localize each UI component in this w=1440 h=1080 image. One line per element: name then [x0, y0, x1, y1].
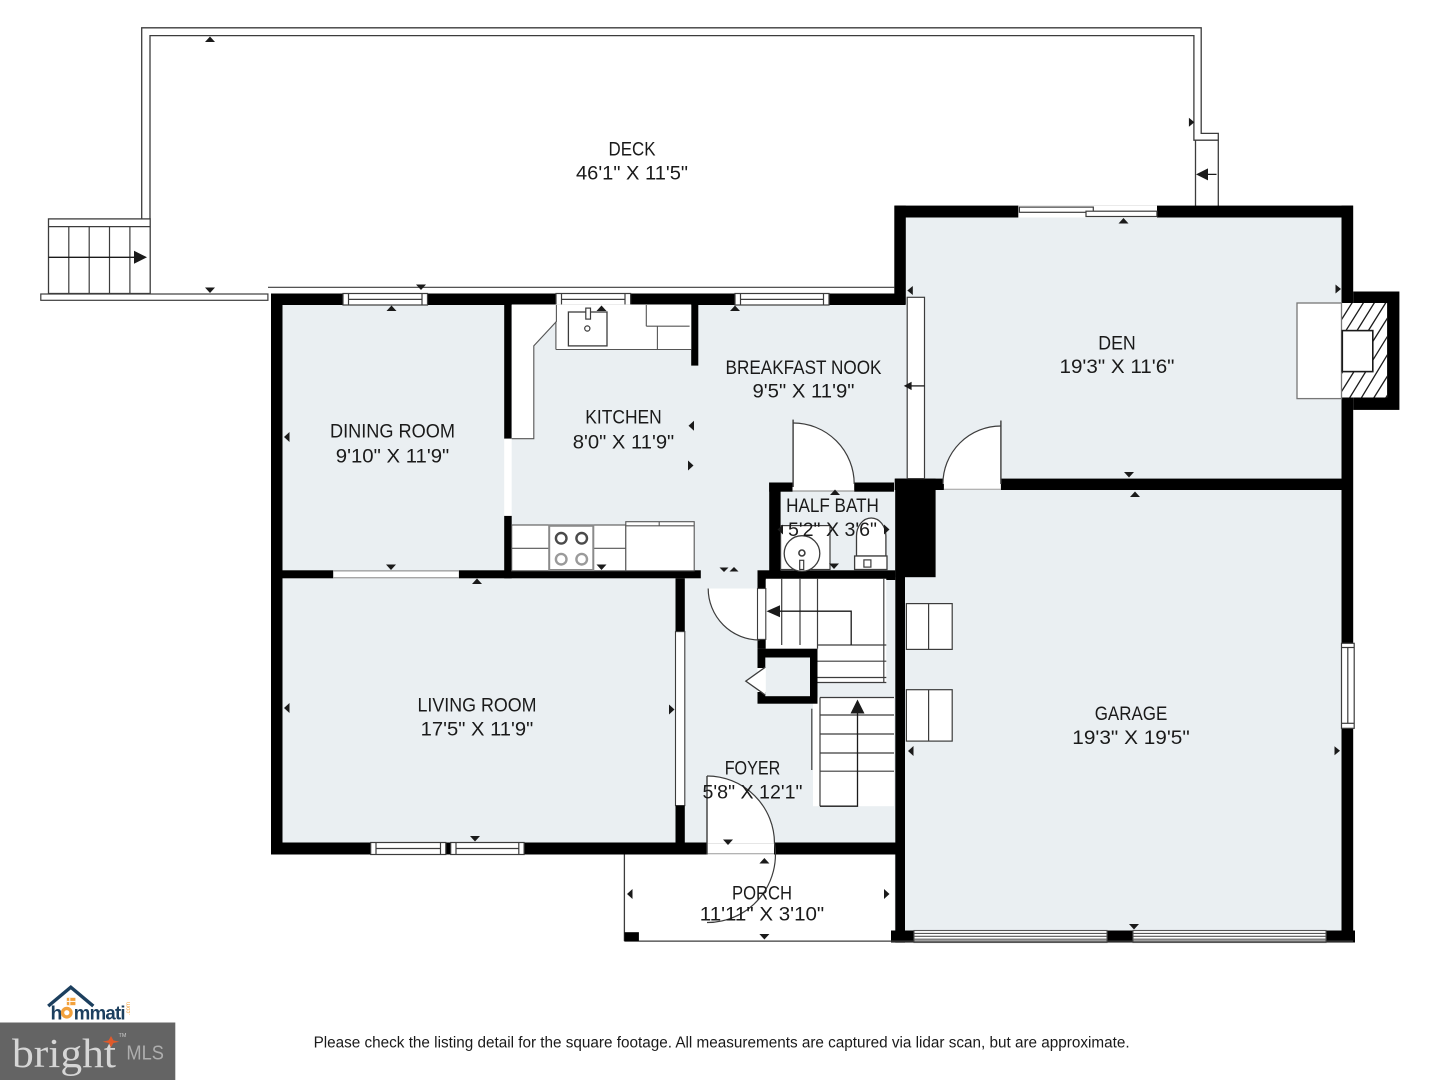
svg-text:9'10" X 11'9": 9'10" X 11'9" — [336, 446, 450, 468]
svg-text:DEN: DEN — [1098, 333, 1136, 355]
svg-text:9'5" X 11'9": 9'5" X 11'9" — [753, 381, 855, 403]
svg-text:HALF BATH: HALF BATH — [786, 495, 879, 517]
svg-text:KITCHEN: KITCHEN — [585, 407, 662, 429]
svg-text:mmati: mmati — [74, 1003, 125, 1025]
svg-text:LIVING ROOM: LIVING ROOM — [418, 695, 537, 717]
svg-text:DECK: DECK — [609, 139, 656, 161]
svg-text:19'3" X 11'6": 19'3" X 11'6" — [1060, 356, 1175, 378]
svg-text:46'1" X 11'5": 46'1" X 11'5" — [576, 163, 688, 185]
svg-text:GARAGE: GARAGE — [1095, 703, 1168, 725]
svg-text:TM: TM — [119, 1033, 127, 1039]
svg-text:BREAKFAST NOOK: BREAKFAST NOOK — [726, 357, 882, 379]
svg-text:5'8" X 12'1": 5'8" X 12'1" — [703, 782, 803, 804]
svg-text:17'5" X 11'9": 17'5" X 11'9" — [421, 719, 534, 741]
svg-text:5'2" X 3'6": 5'2" X 3'6" — [788, 519, 877, 541]
svg-text:FOYER: FOYER — [725, 758, 781, 780]
svg-text:PORCH: PORCH — [732, 883, 792, 905]
svg-text:Please check the listing detai: Please check the listing detail for the … — [314, 1035, 1130, 1052]
svg-text:DINING ROOM: DINING ROOM — [330, 421, 455, 443]
svg-text:MLS: MLS — [126, 1043, 163, 1065]
svg-text:h: h — [51, 1003, 62, 1025]
svg-text:bright: bright — [12, 1030, 117, 1076]
svg-text:11'11" X 3'10": 11'11" X 3'10" — [700, 904, 824, 926]
svg-text:.com: .com — [126, 1002, 132, 1015]
svg-text:19'3" X 19'5": 19'3" X 19'5" — [1072, 727, 1190, 749]
svg-text:8'0" X 11'9": 8'0" X 11'9" — [573, 432, 675, 454]
